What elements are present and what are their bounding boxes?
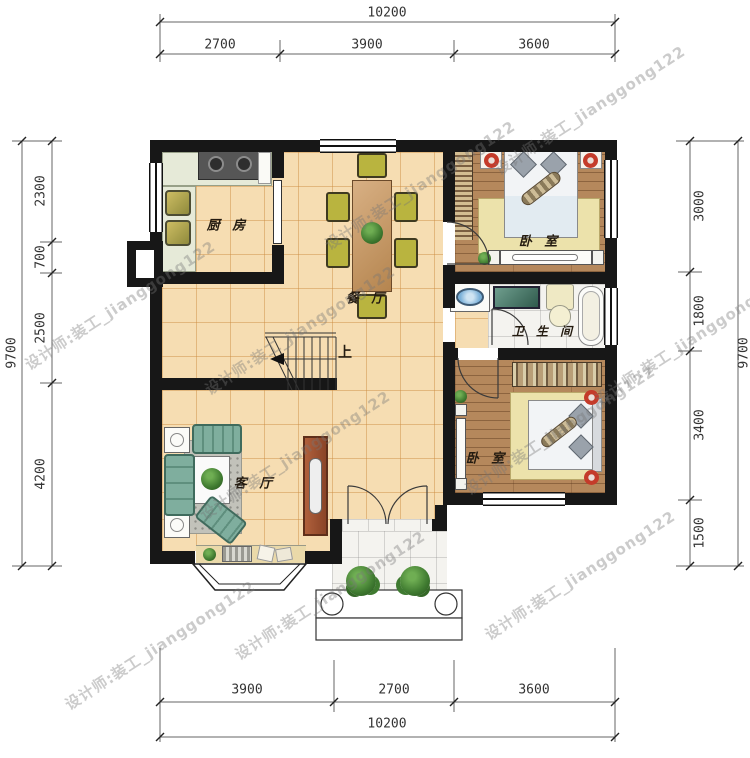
bay-seat-cushion-2 — [275, 547, 293, 563]
dim-top-seg-2: 3900 — [351, 38, 382, 53]
dim-top-seg-3: 3600 — [518, 38, 549, 53]
window-bathroom-right — [604, 288, 618, 345]
floor-plan: 厨 房 餐 厅 卧 室 卫 生 间 客 厅 卧 室 上 10200 2700 3… — [0, 0, 750, 758]
dim-top-seg-1: 2700 — [204, 38, 235, 53]
dim-right-seg-4: 1500 — [693, 517, 708, 548]
bathtub-inner — [582, 291, 600, 341]
bay-seat-radiator — [222, 546, 252, 562]
porch-plant-right — [400, 566, 430, 596]
dim-bottom-total: 10200 — [367, 717, 406, 732]
dining-chair-top — [357, 153, 387, 178]
window-bedroom1-right — [604, 160, 618, 238]
wall-center-vertical-3 — [443, 342, 455, 493]
label-stairs-up: 上 — [338, 342, 352, 362]
dim-bottom-seg-1: 3900 — [231, 683, 262, 698]
lamp-bottom-right-2 — [584, 470, 599, 485]
dim-left-total: 9700 — [5, 337, 20, 368]
dim-right-total: 9700 — [737, 337, 750, 368]
window-dining-top — [320, 139, 396, 153]
armchair-top — [192, 424, 242, 454]
dim-right-seg-1: 3000 — [693, 190, 708, 221]
wall-entry-jog — [330, 519, 342, 564]
end-table-1-decor — [170, 433, 184, 447]
wall-center-vertical-2 — [443, 265, 455, 308]
bay-seat-plant — [203, 548, 216, 561]
window-kitchen-left — [149, 163, 163, 232]
window-bedroom2-bottom — [483, 492, 565, 506]
sink-basin — [456, 288, 484, 306]
watermark: 设计师:装工_jianggong122 — [481, 505, 680, 644]
wall-kitchen-right-top — [272, 152, 284, 178]
mirror-cabinet — [493, 286, 540, 309]
dim-left-seg-2: 700 — [34, 245, 49, 268]
wall-stairs — [150, 378, 337, 390]
dining-chair-left-1 — [326, 192, 350, 222]
lamp-top-right — [583, 153, 598, 168]
bedroom-bottom-plant — [454, 390, 467, 403]
dim-left-seg-1: 2300 — [34, 175, 49, 206]
dim-right-seg-3: 3400 — [693, 409, 708, 440]
bay-seat-cushion-1 — [257, 545, 276, 563]
dim-left-seg-4: 4200 — [34, 458, 49, 489]
kitchen-door — [273, 180, 282, 244]
wardrobe-bottom-bedroom — [512, 362, 602, 387]
bedroom-top-plant — [478, 252, 491, 265]
end-table-2-decor — [170, 518, 184, 532]
dining-chair-right-2 — [394, 238, 418, 268]
stove-burner-right — [236, 156, 252, 172]
tv-bench-top-inner — [512, 254, 578, 261]
speaker-top-right — [592, 250, 604, 265]
wall-bath-bottom-right — [498, 348, 617, 360]
dim-bottom-seg-2: 2700 — [378, 683, 409, 698]
wall-living-bottom-left — [150, 551, 195, 564]
tv-living — [309, 458, 322, 514]
porch-column-right — [435, 593, 457, 615]
dim-top-total: 10200 — [367, 6, 406, 21]
label-bathroom: 卫 生 间 — [512, 323, 576, 340]
speaker-bottom-1 — [455, 404, 467, 416]
wall-bedroom2-bottom-right — [565, 493, 617, 505]
stove-burner-left — [208, 156, 224, 172]
kitchen-sink-basin-1 — [165, 190, 191, 216]
wall-entry-connector — [435, 505, 447, 531]
watermark: 设计师:装工_jianggong122 — [61, 575, 260, 714]
label-bedroom-top: 卧 室 — [519, 231, 562, 250]
dim-bottom-seg-3: 3600 — [518, 683, 549, 698]
coffee-table-plant — [201, 468, 223, 490]
wall-bedroom1-bottom — [443, 272, 617, 284]
label-kitchen: 厨 房 — [207, 215, 250, 234]
sofa — [164, 454, 195, 516]
kitchen-cabinet — [258, 152, 271, 184]
kitchen-sink-basin-2 — [165, 220, 191, 246]
